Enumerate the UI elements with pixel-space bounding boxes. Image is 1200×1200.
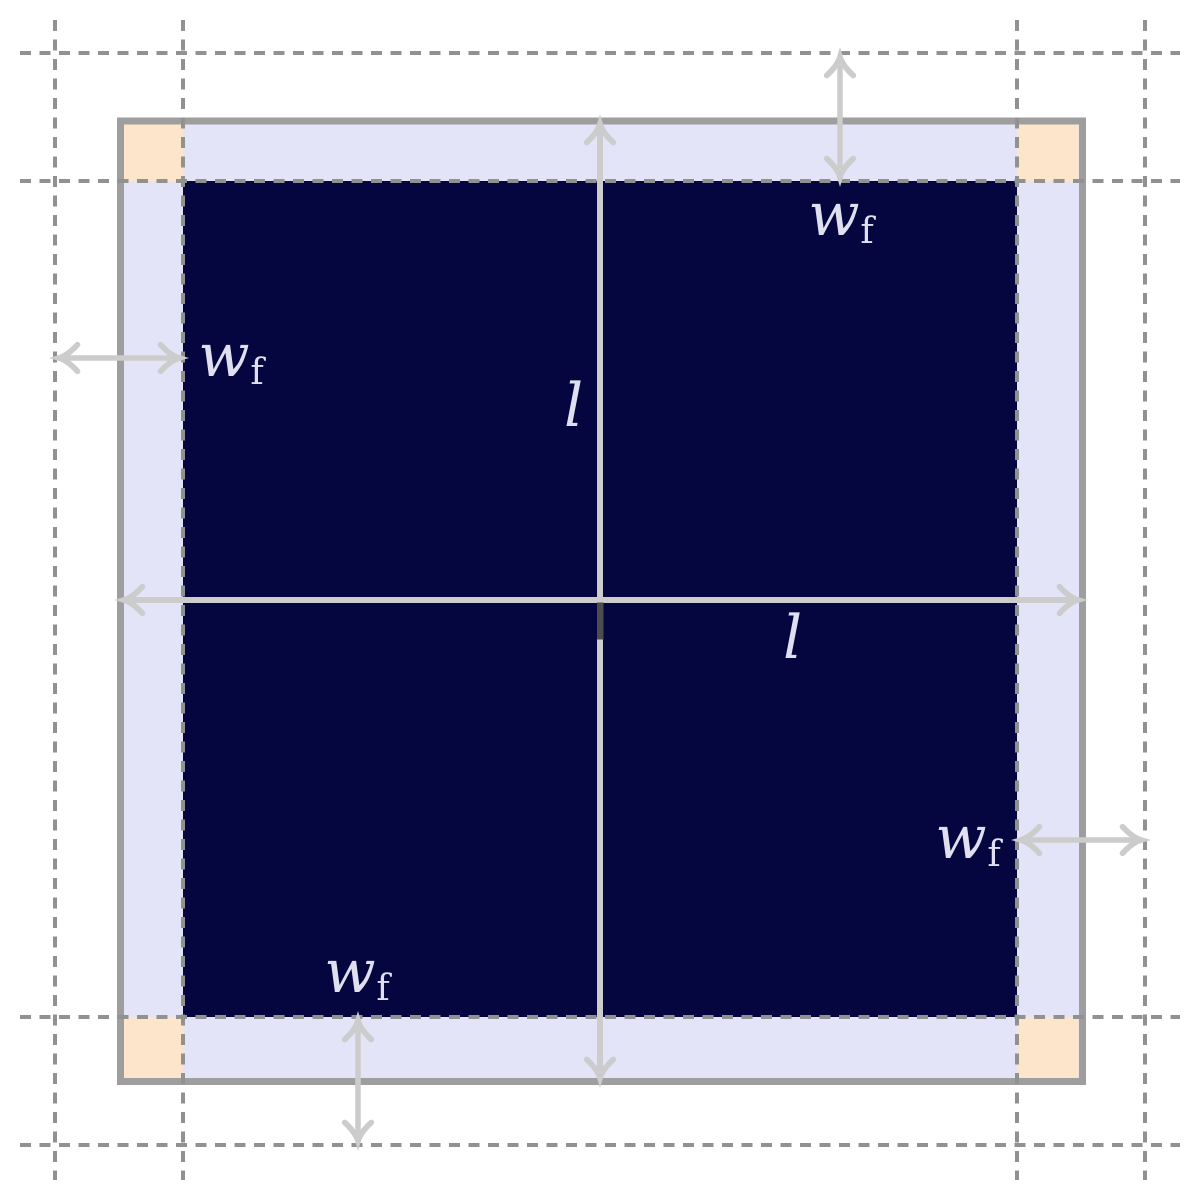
corner-pad-bottom-left <box>124 1017 183 1078</box>
diagram-canvas <box>0 0 1200 1200</box>
wf-label-left: wf <box>198 326 263 386</box>
membrane-geometry-diagram: wf wf wf wf l l <box>0 0 1200 1200</box>
center-marker <box>597 603 604 640</box>
corner-pad-bottom-right <box>1017 1017 1079 1078</box>
wf-label-bottom: wf <box>324 942 389 1002</box>
wf-label-top: wf <box>808 185 873 245</box>
wf-label-right: wf <box>935 808 1000 868</box>
corner-pad-top-right <box>1017 125 1079 182</box>
length-label-horizontal: l <box>783 608 803 668</box>
corner-pad-top-left <box>124 125 183 182</box>
length-label-vertical: l <box>564 376 584 436</box>
